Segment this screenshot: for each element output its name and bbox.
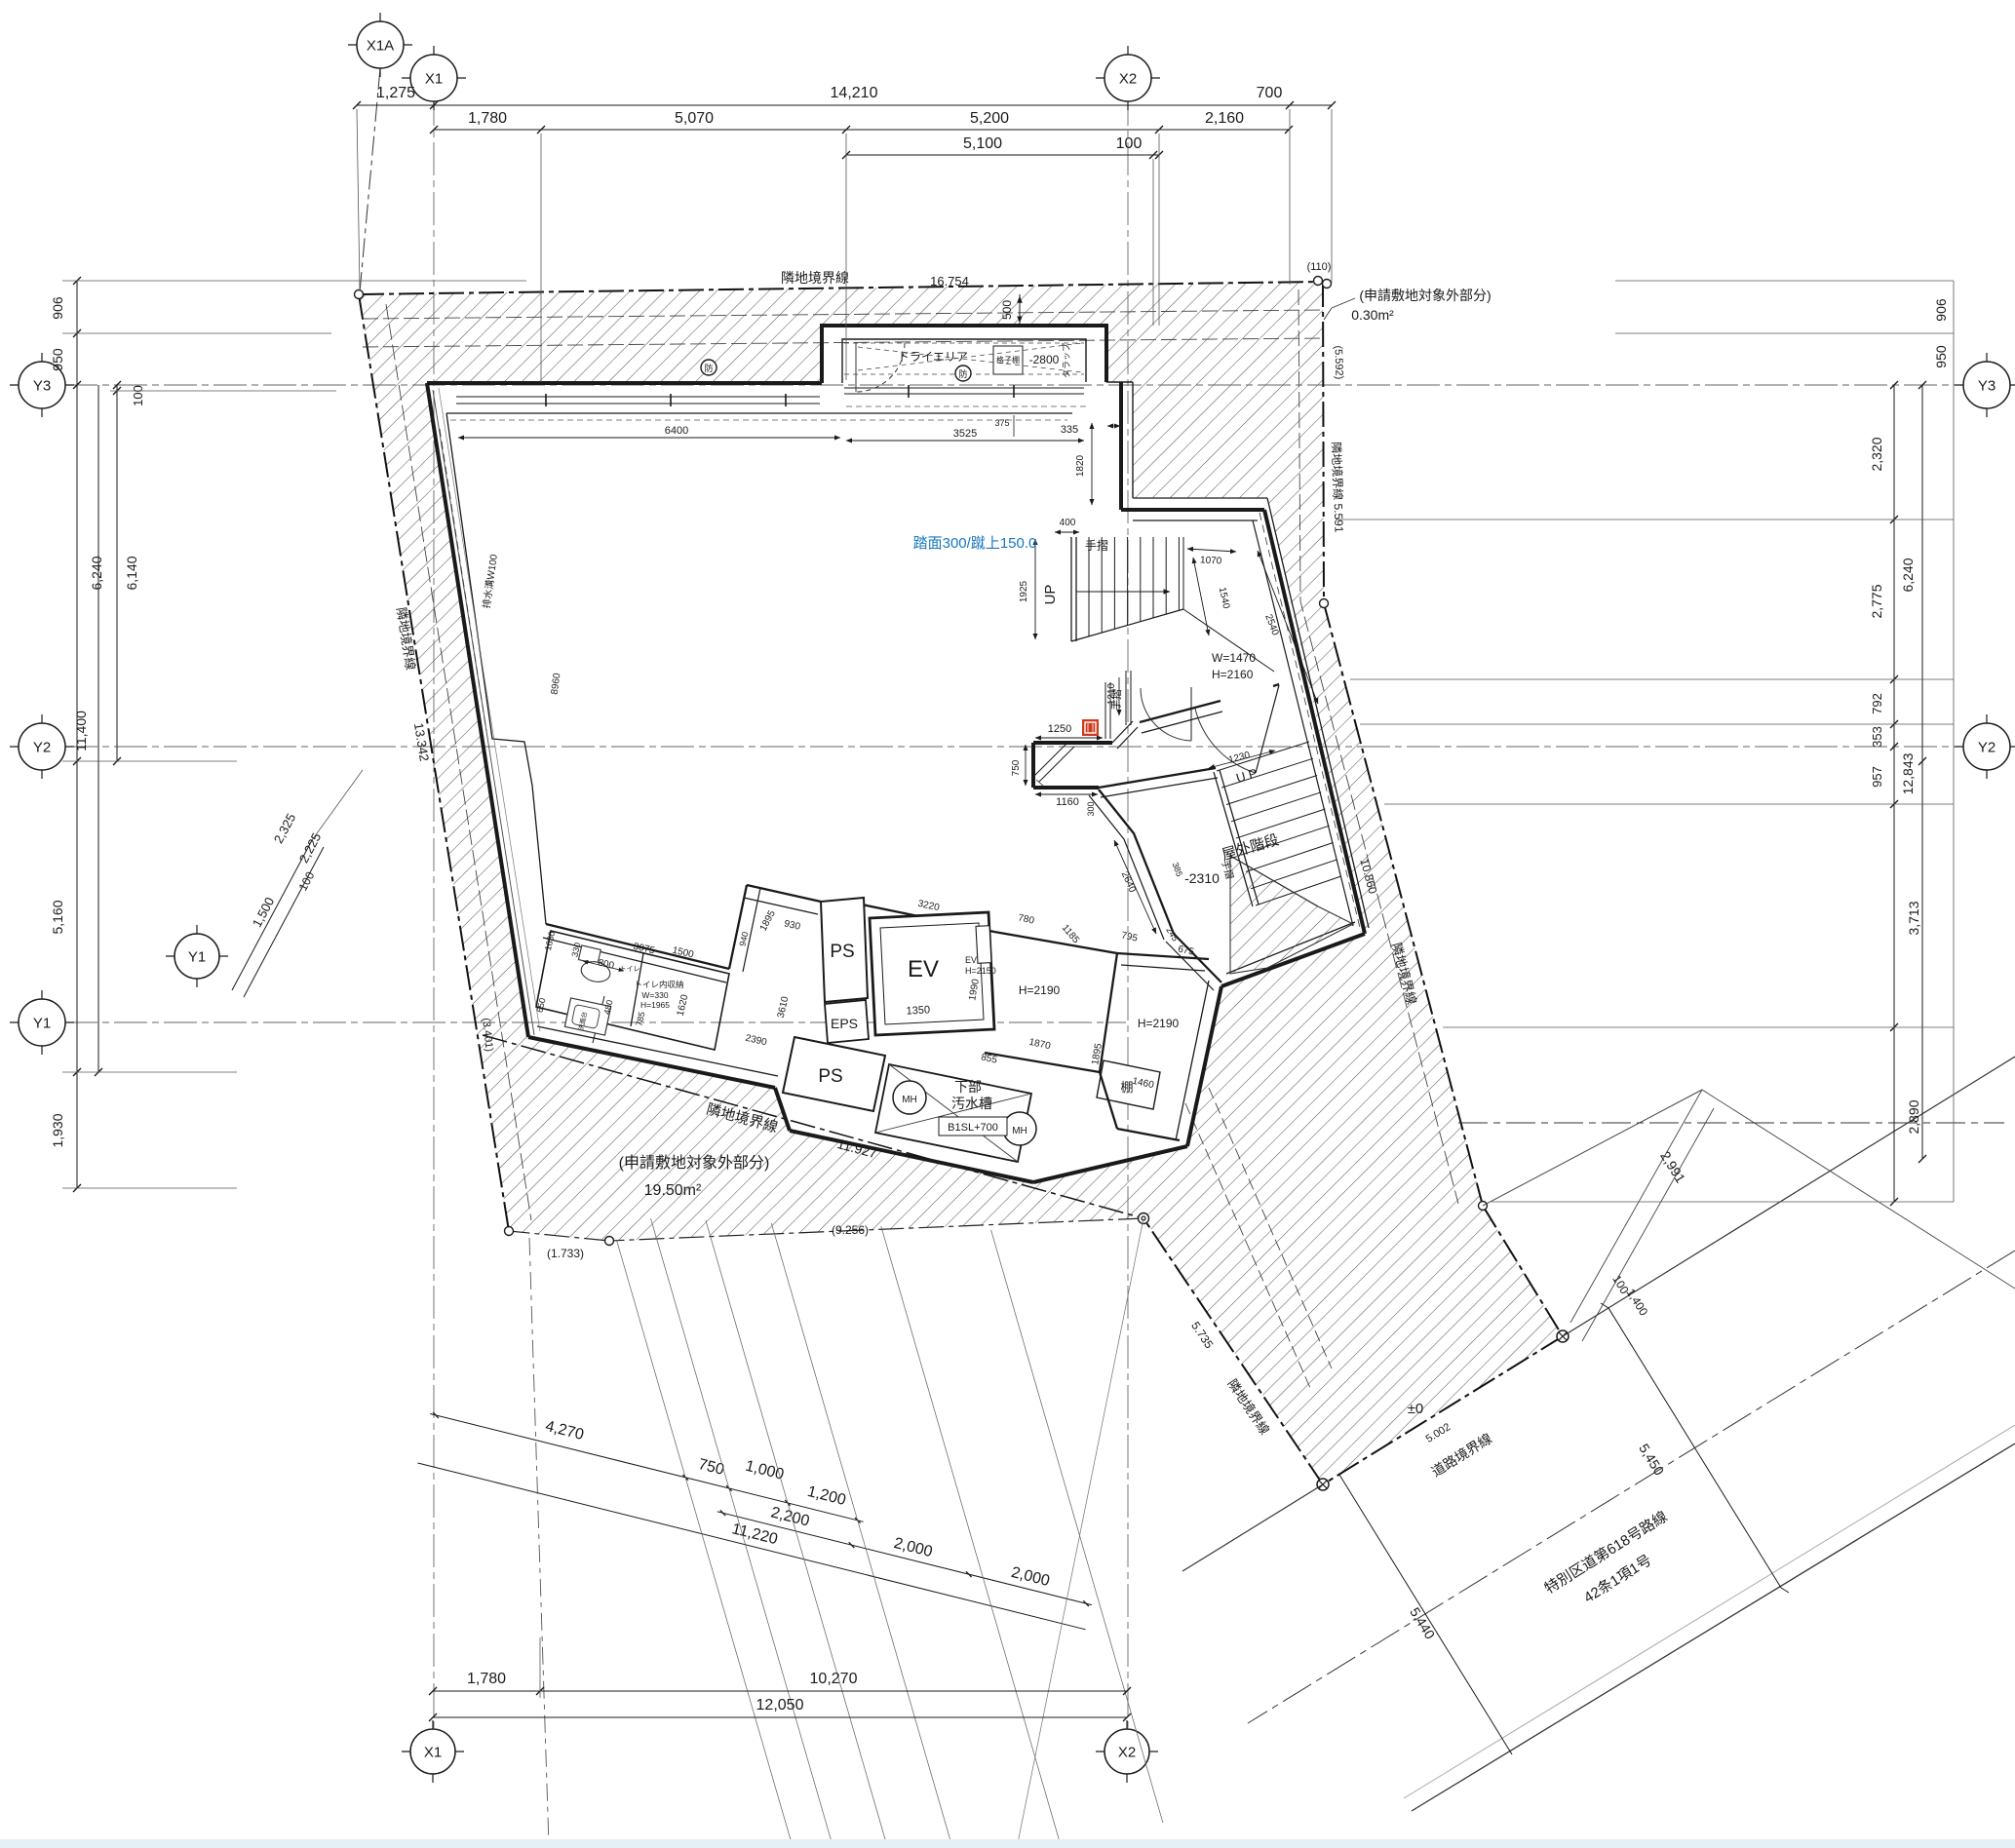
svg-text:957: 957 [1870, 766, 1884, 788]
svg-text:0.30m²: 0.30m² [1351, 307, 1394, 323]
svg-text:792: 792 [1870, 693, 1884, 714]
svg-text:防: 防 [958, 368, 967, 379]
svg-text:10,270: 10,270 [810, 1671, 858, 1687]
svg-text:19.50m²: 19.50m² [644, 1182, 702, 1199]
svg-text:1,275: 1,275 [376, 85, 415, 101]
svg-text:950: 950 [1933, 345, 1949, 368]
svg-text:14,210: 14,210 [831, 85, 878, 101]
svg-text:下部: 下部 [954, 1079, 982, 1095]
svg-text:1,780: 1,780 [468, 110, 507, 127]
svg-text:2,890: 2,890 [1906, 1099, 1921, 1134]
svg-text:EV: EV [965, 955, 977, 965]
svg-text:踏面300/蹴上150.0: 踏面300/蹴上150.0 [913, 535, 1037, 552]
svg-text:EV: EV [908, 956, 939, 982]
svg-text:5,200: 5,200 [970, 110, 1009, 127]
svg-text:6,240: 6,240 [89, 556, 104, 590]
svg-text:Y3: Y3 [33, 377, 51, 394]
svg-text:2,775: 2,775 [1869, 584, 1884, 618]
svg-text:300: 300 [1086, 801, 1096, 816]
svg-text:6400: 6400 [665, 425, 688, 437]
svg-text:B1SL+700: B1SL+700 [948, 1122, 998, 1134]
svg-text:950: 950 [50, 348, 65, 371]
svg-text:-2310: -2310 [1184, 870, 1220, 886]
svg-text:1350: 1350 [906, 1004, 930, 1017]
svg-text:12,843: 12,843 [1900, 752, 1916, 794]
svg-text:格子棚: 格子棚 [996, 355, 1020, 365]
svg-text:H=2190: H=2190 [1138, 1017, 1180, 1030]
svg-text:MH: MH [902, 1095, 917, 1105]
svg-text:906: 906 [1933, 298, 1949, 322]
svg-text:1210: 1210 [1106, 682, 1117, 705]
svg-text:375: 375 [994, 418, 1009, 428]
svg-text:X1: X1 [424, 1744, 442, 1760]
svg-text:H=2150: H=2150 [965, 966, 996, 976]
svg-text:X2: X2 [1119, 70, 1137, 87]
svg-text:隣地境界線: 隣地境界線 [781, 270, 849, 286]
svg-text:X1: X1 [425, 70, 443, 87]
svg-text:(申請敷地対象外部分): (申請敷地対象外部分) [619, 1153, 770, 1172]
svg-text:W=1470: W=1470 [1212, 651, 1256, 665]
svg-text:EPS: EPS [831, 1016, 858, 1031]
svg-text:750: 750 [1011, 759, 1022, 776]
svg-text:-2800: -2800 [1029, 353, 1060, 366]
svg-text:ドライエリア: ドライエリア [898, 350, 968, 364]
svg-text:500: 500 [1000, 300, 1014, 320]
svg-text:汚水槽: 汚水槽 [951, 1096, 992, 1111]
svg-text:12,050: 12,050 [756, 1697, 804, 1713]
svg-text:H=1965: H=1965 [640, 1000, 670, 1010]
svg-text:5,070: 5,070 [675, 110, 714, 127]
svg-text:3525: 3525 [953, 428, 977, 440]
svg-text:2,160: 2,160 [1205, 110, 1244, 127]
svg-text:100: 100 [131, 385, 145, 406]
svg-text:1925: 1925 [1019, 580, 1029, 602]
svg-text:400: 400 [1060, 518, 1076, 528]
svg-text:700: 700 [1257, 85, 1283, 101]
svg-text:353: 353 [1870, 726, 1884, 748]
svg-text:100: 100 [1116, 135, 1143, 152]
svg-text:5,160: 5,160 [50, 900, 65, 934]
svg-text:Y1: Y1 [188, 948, 206, 965]
svg-text:H=2190: H=2190 [1019, 983, 1061, 997]
svg-text:6,240: 6,240 [1900, 558, 1916, 592]
svg-text:1070: 1070 [1200, 555, 1222, 566]
svg-text:UP: UP [1042, 585, 1059, 605]
svg-text:PS: PS [818, 1066, 842, 1087]
svg-text:H=2160: H=2160 [1212, 668, 1254, 681]
svg-text:2,320: 2,320 [1869, 437, 1884, 471]
svg-text:W=330: W=330 [641, 990, 668, 1000]
svg-text:1250: 1250 [1048, 723, 1071, 735]
svg-text:(110): (110) [1307, 261, 1332, 273]
svg-text:PS: PS [830, 942, 854, 962]
svg-text:1820: 1820 [1075, 454, 1086, 477]
svg-text:1,930: 1,930 [50, 1113, 65, 1147]
svg-text:(5.592): (5.592) [1332, 345, 1344, 379]
svg-text:X1A: X1A [367, 37, 394, 54]
svg-text:3,713: 3,713 [1906, 901, 1921, 935]
svg-text:6,140: 6,140 [124, 556, 139, 590]
svg-text:Y2: Y2 [33, 739, 51, 755]
svg-text:Y1: Y1 [33, 1015, 51, 1031]
svg-text:11,400: 11,400 [73, 711, 89, 751]
svg-text:335: 335 [1061, 424, 1078, 436]
svg-text:5,100: 5,100 [963, 135, 1002, 152]
svg-text:1160: 1160 [1056, 796, 1079, 808]
svg-text:X2: X2 [1118, 1744, 1136, 1760]
svg-text:Y2: Y2 [1978, 739, 1996, 755]
svg-text:防: 防 [704, 363, 713, 373]
svg-text:±0: ±0 [1408, 1401, 1424, 1417]
svg-text:トイレ: トイレ [620, 966, 640, 973]
svg-text:MH: MH [1012, 1126, 1027, 1136]
svg-text:(1.733): (1.733) [547, 1247, 584, 1260]
svg-text:Y3: Y3 [1978, 377, 1996, 394]
svg-text:タラップ: タラップ [1062, 343, 1071, 378]
svg-text:手摺: 手摺 [1085, 538, 1108, 553]
svg-text:16.754: 16.754 [930, 274, 969, 289]
svg-text:トイレ内収納: トイレ内収納 [634, 980, 683, 989]
svg-text:906: 906 [50, 296, 65, 320]
svg-text:(申請敷地対象外部分): (申請敷地対象外部分) [1359, 288, 1491, 303]
svg-text:(9.256): (9.256) [832, 1223, 869, 1237]
svg-text:1,780: 1,780 [467, 1671, 506, 1687]
